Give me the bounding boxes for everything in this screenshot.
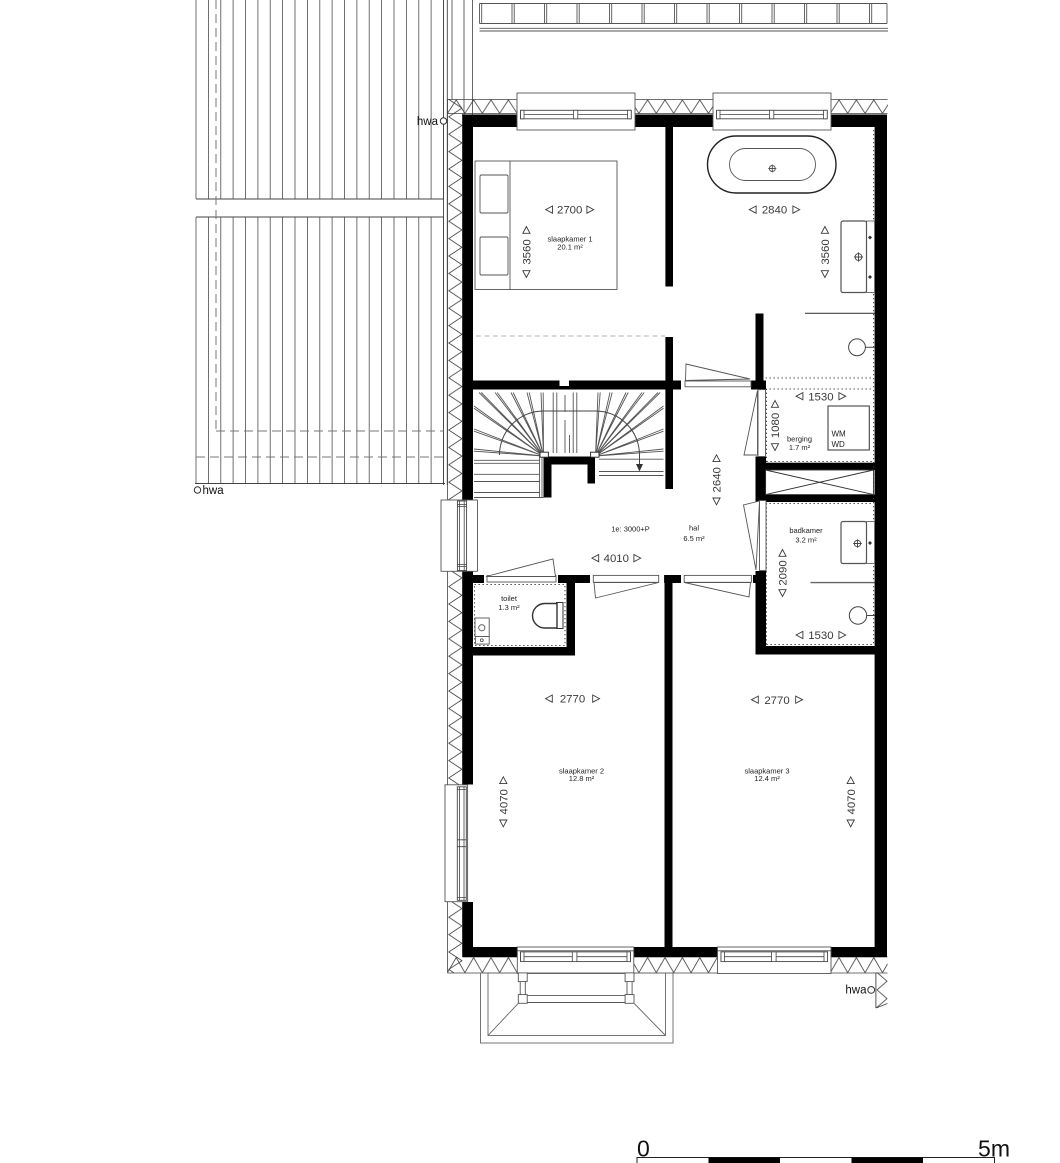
svg-text:badkamer: badkamer (789, 526, 823, 535)
svg-text:2700: 2700 (557, 205, 582, 217)
svg-text:hwa: hwa (417, 116, 439, 128)
svg-text:toilet: toilet (501, 594, 518, 603)
svg-text:20.1 m²: 20.1 m² (557, 242, 583, 251)
svg-text:2770: 2770 (764, 695, 789, 707)
svg-text:1530: 1530 (808, 630, 833, 642)
svg-text:1.7 m²: 1.7 m² (789, 443, 811, 452)
svg-text:hal: hal (689, 523, 699, 532)
svg-text:hwa: hwa (845, 985, 867, 997)
svg-text:2840: 2840 (762, 205, 787, 217)
svg-text:4070: 4070 (498, 789, 510, 814)
svg-text:2770: 2770 (560, 694, 585, 706)
svg-text:0: 0 (637, 1136, 650, 1162)
svg-text:1080: 1080 (770, 413, 782, 438)
svg-text:4070: 4070 (846, 789, 858, 814)
svg-text:hwa: hwa (203, 485, 225, 497)
svg-text:3560: 3560 (522, 239, 534, 264)
svg-text:3560: 3560 (820, 239, 832, 264)
svg-text:1530: 1530 (808, 391, 833, 403)
svg-text:2090: 2090 (778, 560, 790, 585)
svg-text:2640: 2640 (712, 467, 724, 492)
svg-text:5m: 5m (978, 1136, 1010, 1162)
svg-text:6.5 m²: 6.5 m² (683, 534, 705, 543)
svg-text:1e: 3000+P: 1e: 3000+P (611, 525, 650, 534)
svg-text:WD: WD (832, 440, 846, 449)
svg-text:WM: WM (832, 430, 847, 439)
svg-text:1.3 m²: 1.3 m² (498, 603, 520, 612)
svg-text:12.8 m²: 12.8 m² (569, 774, 595, 783)
svg-text:12.4 m²: 12.4 m² (754, 774, 780, 783)
svg-text:4010: 4010 (604, 553, 629, 565)
svg-text:3.2 m²: 3.2 m² (795, 536, 817, 545)
